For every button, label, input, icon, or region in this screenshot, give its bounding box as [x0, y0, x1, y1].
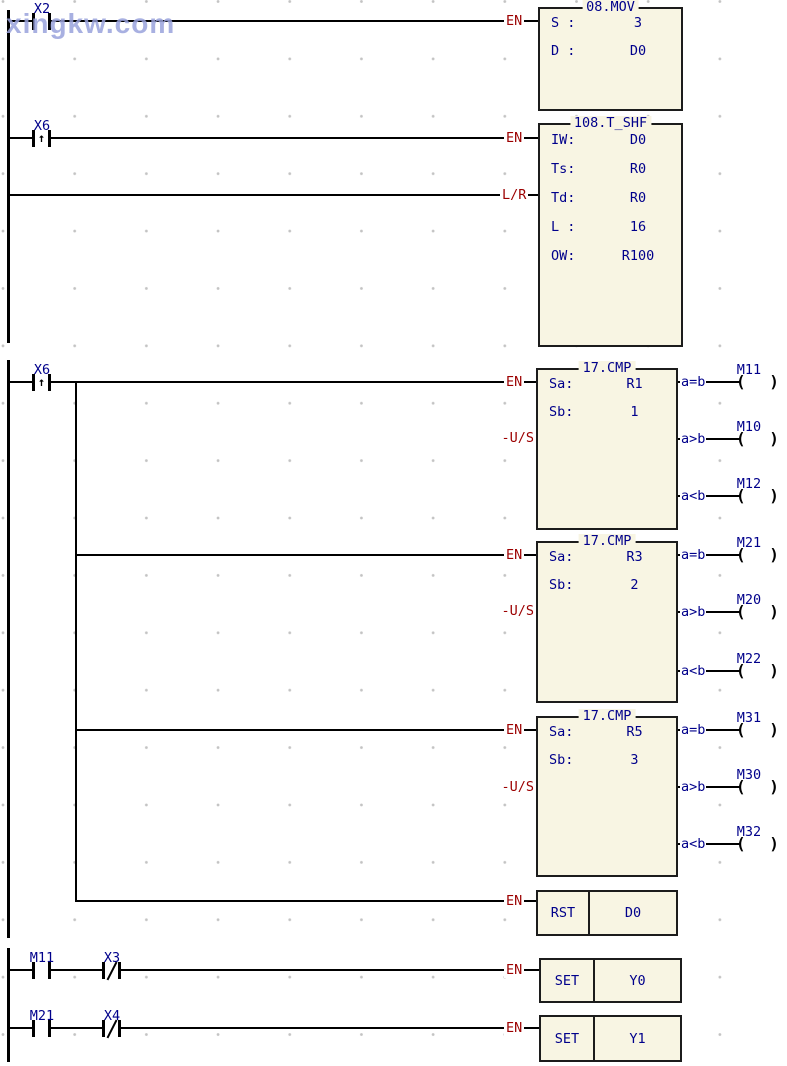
en-input-label: EN — [504, 962, 524, 978]
param-value[interactable]: 1 — [593, 404, 676, 420]
param-value[interactable]: R0 — [595, 190, 681, 206]
nc-contact-x3[interactable] — [102, 962, 121, 979]
rising-edge-icon: ↑ — [38, 130, 45, 147]
param-label: Td: — [551, 190, 595, 206]
ladder-diagram-canvas: X2 EN 08.MOV S : 3 D : D0 X6 ↑ EN L/R 10… — [0, 0, 787, 1066]
branch-line — [75, 382, 77, 902]
en-input-label: EN — [504, 374, 524, 390]
output-condition-label: a=b — [680, 722, 706, 738]
param-value[interactable]: R0 — [595, 161, 681, 177]
param-value[interactable]: 3 — [593, 752, 676, 768]
param-value[interactable]: 2 — [593, 577, 676, 593]
param-value[interactable]: R5 — [593, 724, 676, 740]
contact-bar — [32, 1020, 35, 1037]
normally-closed-slash — [106, 1019, 117, 1038]
rung-line-cmp3 — [76, 729, 536, 731]
contact-bar — [48, 374, 51, 391]
contact-bar — [102, 1020, 105, 1037]
param-label: Sb: — [549, 752, 593, 768]
param-label: Ts: — [551, 161, 595, 177]
compare-block-2[interactable]: 17.CMP Sa: R3 Sb: 2 — [536, 541, 678, 703]
no-contact-m21[interactable] — [32, 1020, 51, 1037]
output-condition-label: a=b — [680, 374, 706, 390]
output-condition-label: a<b — [680, 488, 706, 504]
en-input-label: EN — [504, 13, 524, 29]
param-value[interactable]: D0 — [595, 43, 681, 59]
contact-bar — [118, 1020, 121, 1037]
rising-edge-contact-x6[interactable]: ↑ — [32, 374, 51, 391]
us-input-label: -U/S — [494, 779, 534, 795]
coil-m21[interactable]: ( ) — [736, 546, 786, 564]
nc-contact-x4[interactable] — [102, 1020, 121, 1037]
function-block-mov[interactable]: 08.MOV S : 3 D : D0 — [538, 7, 683, 111]
param-value[interactable]: 3 — [595, 15, 681, 31]
param-label: D : — [551, 43, 595, 59]
block-title-cmp1: 17.CMP — [579, 361, 636, 376]
contact-bar — [48, 962, 51, 979]
en-input-label: EN — [504, 722, 524, 738]
op-operand[interactable]: Y1 — [595, 1017, 680, 1060]
output-condition-label: a<b — [680, 836, 706, 852]
en-input-label: EN — [504, 547, 524, 563]
param-value[interactable]: R3 — [593, 549, 676, 565]
rising-edge-contact-x6[interactable]: ↑ — [32, 130, 51, 147]
function-block-tshf[interactable]: 108.T_SHF IW: D0 Ts: R0 Td: R0 L : 16 OW… — [538, 123, 683, 347]
rung-line-tshf-lr — [8, 194, 538, 196]
op-name: RST — [538, 892, 590, 934]
param-label: S : — [551, 15, 595, 31]
param-value[interactable]: 16 — [595, 219, 681, 235]
output-condition-label: a>b — [680, 431, 706, 447]
rung-line-cmp2 — [76, 554, 536, 556]
left-power-rail-segment-3 — [7, 948, 10, 1062]
set-block-y1[interactable]: SET Y1 — [539, 1015, 682, 1062]
output-condition-label: a<b — [680, 663, 706, 679]
en-input-label: EN — [504, 1020, 524, 1036]
coil-m11[interactable]: ( ) — [736, 373, 786, 391]
coil-m32[interactable]: ( ) — [736, 835, 786, 853]
compare-block-1[interactable]: 17.CMP Sa: R1 Sb: 1 — [536, 368, 678, 530]
contact-bar — [118, 962, 121, 979]
block-title-mov: 08.MOV — [582, 0, 639, 15]
coil-m31[interactable]: ( ) — [736, 721, 786, 739]
param-label: Sb: — [549, 577, 593, 593]
rising-edge-icon: ↑ — [38, 374, 45, 391]
param-label: Sa: — [549, 724, 593, 740]
coil-m10[interactable]: ( ) — [736, 430, 786, 448]
coil-m30[interactable]: ( ) — [736, 778, 786, 796]
op-name: SET — [541, 960, 595, 1001]
contact-bar — [48, 130, 51, 147]
left-power-rail-segment-2 — [7, 360, 10, 938]
rst-block[interactable]: RST D0 — [536, 890, 678, 936]
coil-m12[interactable]: ( ) — [736, 487, 786, 505]
block-title-tshf: 108.T_SHF — [570, 116, 651, 131]
param-label: OW: — [551, 248, 595, 264]
en-input-label: EN — [504, 893, 524, 909]
param-label: IW: — [551, 132, 595, 148]
left-power-rail-segment-1 — [7, 10, 10, 343]
rung-line-set-y0 — [8, 969, 539, 971]
en-input-label: EN — [504, 130, 524, 146]
block-title-cmp2: 17.CMP — [579, 534, 636, 549]
coil-m20[interactable]: ( ) — [736, 603, 786, 621]
op-operand[interactable]: Y0 — [595, 960, 680, 1001]
normally-closed-slash — [106, 961, 117, 980]
lr-input-label: L/R — [500, 187, 528, 203]
contact-bar — [48, 1020, 51, 1037]
us-input-label: -U/S — [494, 603, 534, 619]
rung-line-tshf-en — [8, 137, 538, 139]
watermark-text: xingkw.com — [6, 8, 175, 40]
rung-line-set-y1 — [8, 1027, 539, 1029]
contact-bar — [102, 962, 105, 979]
param-value[interactable]: D0 — [595, 132, 681, 148]
contact-bar — [32, 962, 35, 979]
param-label: Sa: — [549, 376, 593, 392]
param-label: Sb: — [549, 404, 593, 420]
compare-block-3[interactable]: 17.CMP Sa: R5 Sb: 3 — [536, 716, 678, 877]
rung-line-cmp1 — [8, 381, 536, 383]
param-label: Sa: — [549, 549, 593, 565]
block-title-cmp3: 17.CMP — [579, 709, 636, 724]
contact-bar — [32, 374, 35, 391]
param-value[interactable]: R1 — [593, 376, 676, 392]
op-name: SET — [541, 1017, 595, 1060]
op-operand[interactable]: D0 — [590, 892, 676, 934]
param-label: L : — [551, 219, 595, 235]
set-block-y0[interactable]: SET Y0 — [539, 958, 682, 1003]
param-value[interactable]: R100 — [595, 248, 681, 264]
us-input-label: -U/S — [494, 430, 534, 446]
rung-line-rst — [76, 900, 536, 902]
contact-bar — [32, 130, 35, 147]
output-condition-label: a>b — [680, 604, 706, 620]
output-condition-label: a>b — [680, 779, 706, 795]
no-contact-m11[interactable] — [32, 962, 51, 979]
output-condition-label: a=b — [680, 547, 706, 563]
coil-m22[interactable]: ( ) — [736, 662, 786, 680]
